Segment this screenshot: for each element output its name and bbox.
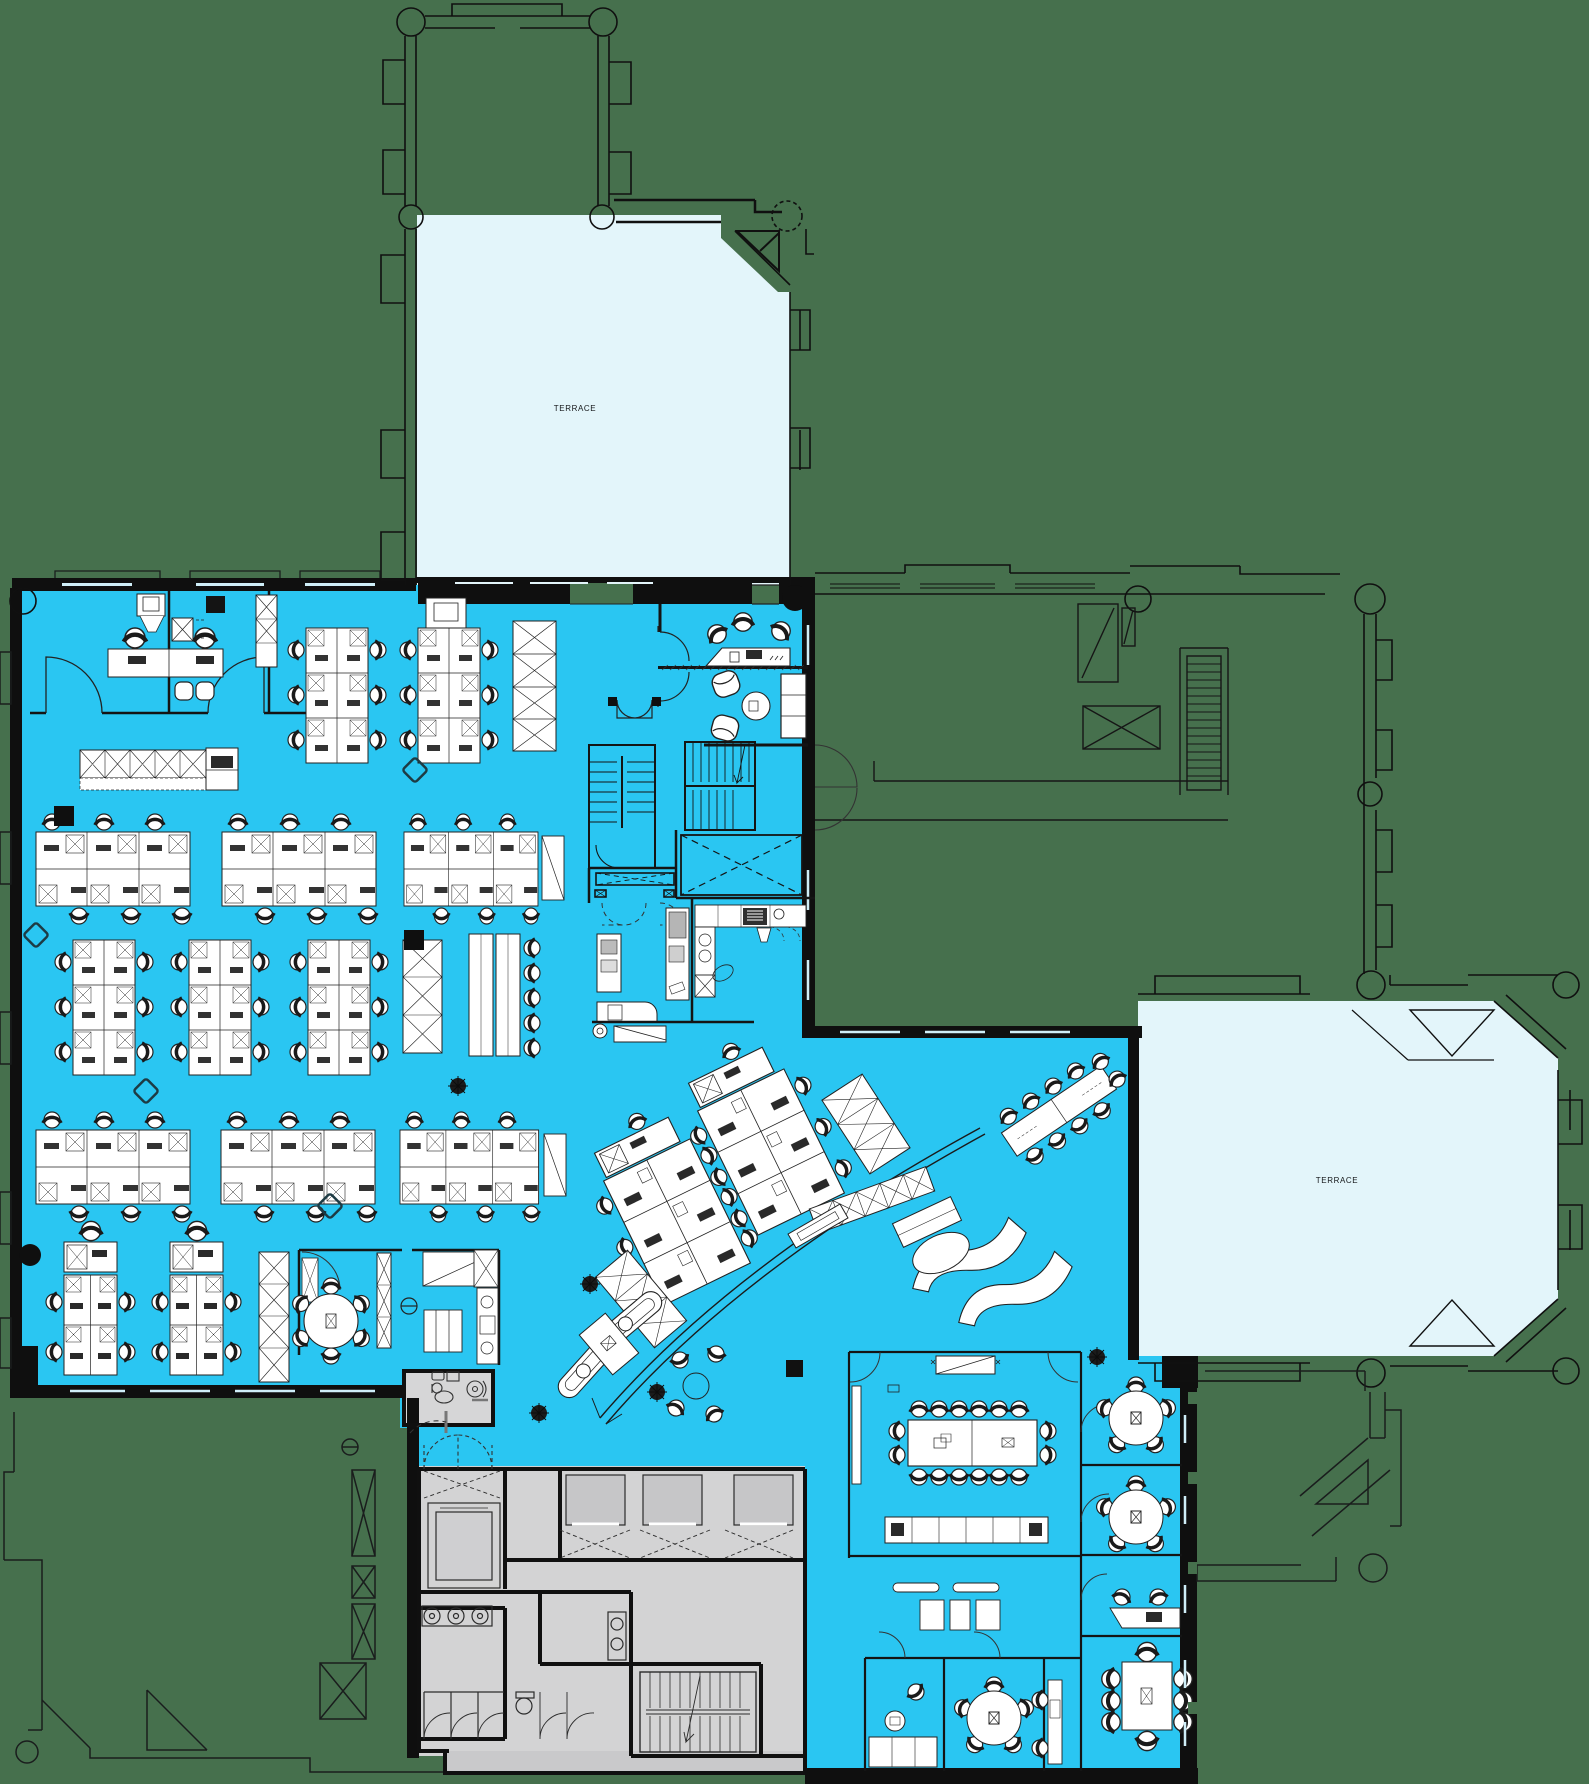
svg-text:TERRACE: TERRACE [1316,1176,1358,1185]
svg-text:TERRACE: TERRACE [554,404,596,413]
